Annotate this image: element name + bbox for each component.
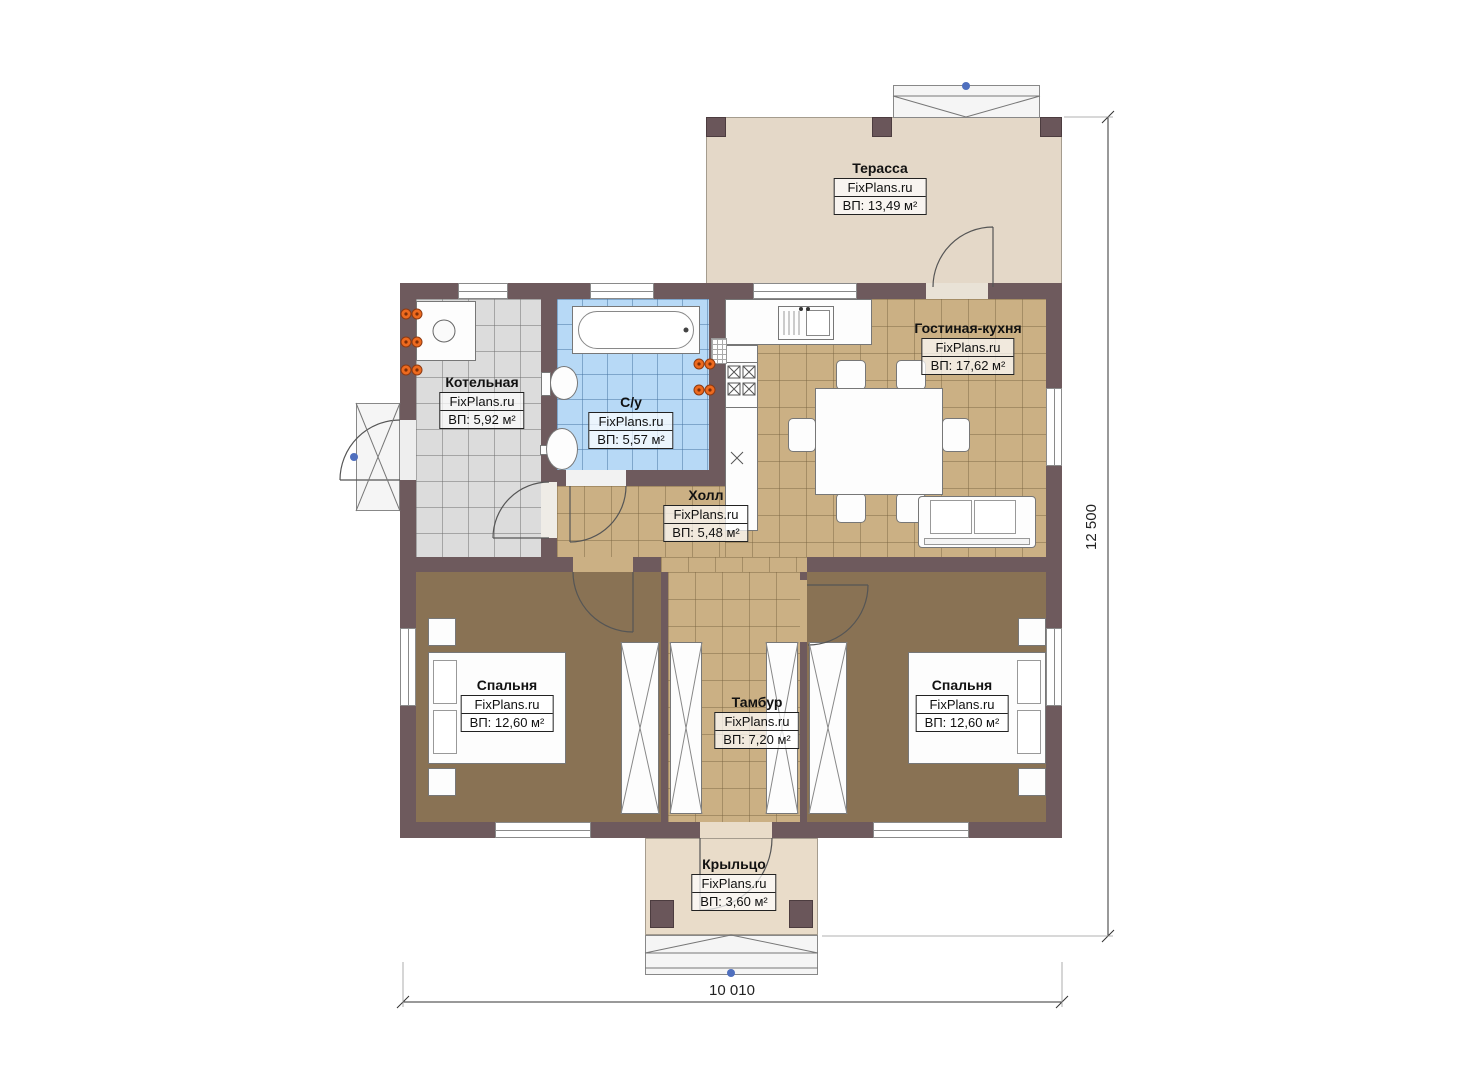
room-info-box: FixPlans.ru ВП: 17,62 м² xyxy=(922,338,1015,375)
room-title: Терасса xyxy=(834,160,927,176)
room-brand: FixPlans.ru xyxy=(462,696,553,713)
window-bathroom xyxy=(590,283,654,299)
room-brand: FixPlans.ru xyxy=(923,339,1014,356)
window-bedroom-right-south xyxy=(873,822,969,838)
sofa-cushion xyxy=(930,500,972,534)
side-entry-steps xyxy=(356,403,400,511)
window-living xyxy=(1046,388,1062,466)
room-info-box: FixPlans.ru ВП: 3,60 м² xyxy=(691,874,776,911)
nightstand xyxy=(1018,618,1046,646)
chair xyxy=(836,360,866,390)
room-area: ВП: 12,60 м² xyxy=(462,713,553,731)
room-area: ВП: 17,62 м² xyxy=(923,356,1014,374)
room-brand: FixPlans.ru xyxy=(917,696,1008,713)
bedroom-left-door-opening xyxy=(573,557,633,572)
hall-label: Холл FixPlans.ru ВП: 5,48 м² xyxy=(663,487,748,542)
room-info-box: FixPlans.ru ВП: 7,20 м² xyxy=(714,712,799,749)
sofa-cushion xyxy=(974,500,1016,534)
room-brand: FixPlans.ru xyxy=(835,179,926,196)
room-title: С/у xyxy=(588,394,673,410)
room-brand: FixPlans.ru xyxy=(440,393,523,410)
room-brand: FixPlans.ru xyxy=(589,413,672,430)
porch-steps xyxy=(645,935,818,975)
pillow xyxy=(1017,660,1041,704)
terrace-post xyxy=(872,117,892,137)
room-title: Крыльцо xyxy=(691,856,776,872)
porch-label: Крыльцо FixPlans.ru ВП: 3,60 м² xyxy=(691,856,776,911)
dimension-height-label: 12 500 xyxy=(1083,504,1100,550)
room-info-box: FixPlans.ru ВП: 5,92 м² xyxy=(439,392,524,429)
bathtub-basin xyxy=(578,311,694,349)
boiler-exterior-door-opening xyxy=(400,420,416,480)
bedroom-right-label: Спальня FixPlans.ru ВП: 12,60 м² xyxy=(916,677,1009,732)
chair xyxy=(836,493,866,523)
entrance-door-opening xyxy=(700,822,772,838)
boiler-hall-door-opening xyxy=(541,482,557,538)
window-boiler xyxy=(458,283,508,299)
room-brand: FixPlans.ru xyxy=(664,506,747,523)
room-title: Холл xyxy=(663,487,748,503)
room-area: ВП: 3,60 м² xyxy=(692,892,775,910)
room-title: Котельная xyxy=(439,374,524,390)
vent-shaft xyxy=(711,338,727,364)
porch-post xyxy=(789,900,813,928)
room-title: Тамбур xyxy=(714,694,799,710)
toilet-bowl xyxy=(550,366,578,400)
sofa-back xyxy=(924,538,1030,545)
washbasin xyxy=(546,428,578,470)
room-info-box: FixPlans.ru ВП: 13,49 м² xyxy=(834,178,927,215)
room-brand: FixPlans.ru xyxy=(692,875,775,892)
chair xyxy=(942,418,970,452)
window-kitchen xyxy=(753,283,857,299)
room-area: ВП: 12,60 м² xyxy=(917,713,1008,731)
bathroom-door-opening xyxy=(566,470,626,486)
closet xyxy=(670,642,702,814)
living-kitchen-label: Гостиная-кухня FixPlans.ru ВП: 17,62 м² xyxy=(914,320,1021,375)
floor-plan: 10 010 12 500 Терасса FixPlans.ru ВП: 13… xyxy=(0,0,1474,1080)
bedroom-right-door-opening xyxy=(800,580,807,642)
room-title: Спальня xyxy=(461,677,554,693)
terrace-door-opening xyxy=(926,283,988,299)
room-area: ВП: 13,49 м² xyxy=(835,196,926,214)
hall-vestibule-passage xyxy=(661,557,807,572)
kitchen-stove xyxy=(725,362,758,408)
room-info-box: FixPlans.ru ВП: 12,60 м² xyxy=(916,695,1009,732)
terrace-post xyxy=(706,117,726,137)
room-info-box: FixPlans.ru ВП: 5,57 м² xyxy=(588,412,673,449)
nightstand xyxy=(428,618,456,646)
room-title: Гостиная-кухня xyxy=(914,320,1021,336)
window-bedroom-left-south xyxy=(495,822,591,838)
chair xyxy=(788,418,816,452)
dining-table xyxy=(815,388,943,495)
room-title: Спальня xyxy=(916,677,1009,693)
window-bedroom-right xyxy=(1046,628,1062,706)
nightstand xyxy=(428,768,456,796)
room-area: ВП: 5,48 м² xyxy=(664,523,747,541)
porch-post xyxy=(650,900,674,928)
wardrobe xyxy=(809,642,847,814)
kitchen-sink-basin xyxy=(806,310,830,336)
room-area: ВП: 5,92 м² xyxy=(440,410,523,428)
bathroom-label: С/у FixPlans.ru ВП: 5,57 м² xyxy=(588,394,673,449)
room-area: ВП: 5,57 м² xyxy=(589,430,672,448)
pillow xyxy=(1017,710,1041,754)
window-bedroom-left xyxy=(400,628,416,706)
vestibule-label: Тамбур FixPlans.ru ВП: 7,20 м² xyxy=(714,694,799,749)
boiler-room-label: Котельная FixPlans.ru ВП: 5,92 м² xyxy=(439,374,524,429)
pillow xyxy=(433,660,457,704)
terrace-post xyxy=(1040,117,1062,137)
nightstand xyxy=(1018,768,1046,796)
terrace-steps xyxy=(893,85,1040,118)
room-info-box: FixPlans.ru ВП: 5,48 м² xyxy=(663,505,748,542)
bedroom-left-label: Спальня FixPlans.ru ВП: 12,60 м² xyxy=(461,677,554,732)
room-area: ВП: 7,20 м² xyxy=(715,730,798,748)
dimension-width-label: 10 010 xyxy=(709,982,755,999)
room-brand: FixPlans.ru xyxy=(715,713,798,730)
wardrobe xyxy=(621,642,659,814)
pillow xyxy=(433,710,457,754)
room-info-box: FixPlans.ru ВП: 12,60 м² xyxy=(461,695,554,732)
terrace-label: Терасса FixPlans.ru ВП: 13,49 м² xyxy=(834,160,927,215)
boiler-counter xyxy=(416,301,476,361)
